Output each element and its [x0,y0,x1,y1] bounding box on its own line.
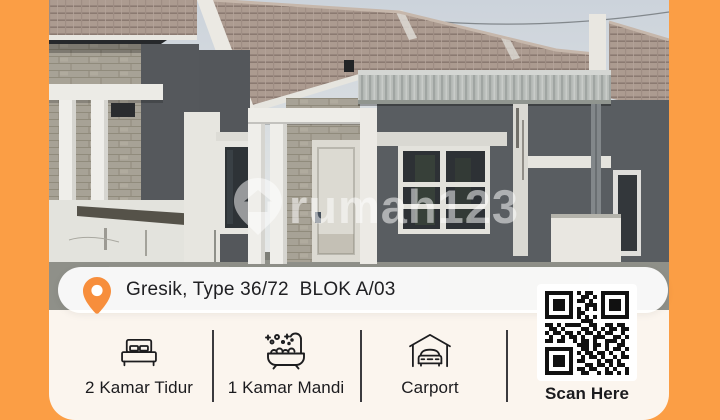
feature-item-bathrooms: 1 Kamar Mandi [211,330,361,398]
carport-icon [355,330,505,370]
feature-label-carport: Carport [355,378,505,398]
divider [506,330,508,402]
feature-item-carport: Carport [355,330,505,398]
feature-label-bedrooms: 2 Kamar Tidur [64,378,214,398]
house-photo: rumah123 [49,0,669,312]
qr-code [545,291,629,375]
bed-icon [64,330,214,370]
feature-item-bedrooms: 2 Kamar Tidur [64,330,214,398]
location-text: Gresik, Type 36/72 BLOK A/03 [126,279,396,301]
qr-box [537,284,637,381]
scan-here-label: Scan Here [512,384,662,404]
feature-label-bathrooms: 1 Kamar Mandi [211,378,361,398]
bathtub-icon [211,330,361,370]
listing-flyer: rumah123 Gresik, Type 36/72 BLOK A/03 [0,0,720,420]
watermark-text: rumah123 [289,180,519,233]
location-pin-icon [82,276,112,318]
house-photo-scene: rumah123 [49,0,669,312]
